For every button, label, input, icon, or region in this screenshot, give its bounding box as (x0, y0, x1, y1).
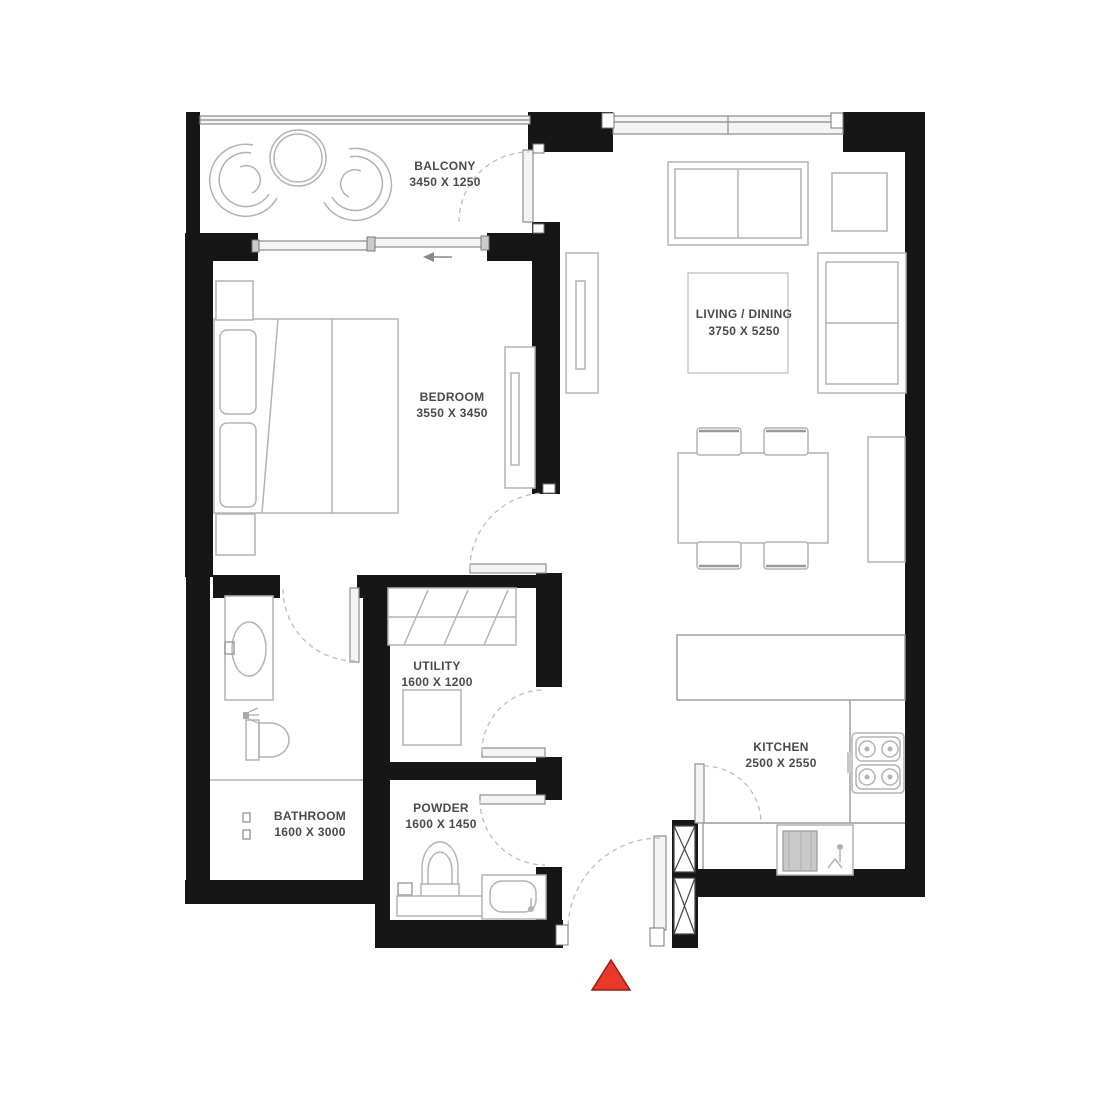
stove-icon (847, 733, 904, 793)
sofa (818, 253, 906, 393)
rug (688, 273, 788, 373)
balcony-chair-right (324, 148, 391, 220)
entry-door (556, 836, 666, 946)
wardrobe (505, 347, 535, 488)
dining-chair (764, 542, 808, 569)
bathroom-label: BATHROOM (274, 809, 346, 823)
nightstand-bottom (216, 514, 255, 555)
bathroom-toilet (246, 720, 289, 760)
bedroom-dims: 3550 X 3450 (416, 406, 487, 420)
living-window (602, 113, 843, 134)
dining-set (678, 428, 828, 569)
bathroom-door (283, 588, 359, 662)
powder-toilet (398, 842, 459, 898)
powder-counter (397, 896, 483, 916)
balcony-chair-left (210, 144, 277, 216)
entry-marker-icon (592, 960, 630, 990)
floor-plan-page: BALCONY 3450 X 1250 BEDROOM 3550 X 3450 … (0, 0, 1100, 1100)
slide-direction-arrow-icon (423, 252, 452, 262)
floor-plan-canvas: BALCONY 3450 X 1250 BEDROOM 3550 X 3450 … (0, 0, 1100, 1100)
dining-chair (697, 428, 741, 455)
dining-chair (764, 428, 808, 455)
balcony-dims: 3450 X 1250 (409, 175, 480, 189)
utility-label: UTILITY (413, 659, 460, 673)
kitchen-sink (777, 825, 853, 875)
tv-console (668, 162, 808, 245)
utility-door (482, 690, 545, 757)
console-table (868, 437, 905, 562)
utility-dims: 1600 X 1200 (401, 675, 472, 689)
bedroom-label: BEDROOM (420, 390, 485, 404)
bathroom-vanity (225, 596, 273, 700)
dining-chair (697, 542, 741, 569)
balcony-railing (200, 116, 530, 124)
kitchen-door (695, 764, 761, 823)
living-dining-label: LIVING / DINING (696, 307, 793, 321)
powder-sink (482, 875, 546, 919)
nightstand-top (216, 281, 253, 320)
kitchen-dims: 2500 X 2550 (745, 756, 816, 770)
powder-door (480, 795, 545, 865)
bathroom-dims: 1600 X 3000 (274, 825, 345, 839)
bed (214, 319, 398, 513)
balcony-table (270, 130, 326, 186)
washing-machine (403, 690, 461, 745)
wall-tv-unit (566, 253, 598, 393)
side-table (832, 173, 887, 231)
powder-label: POWDER (413, 801, 469, 815)
bedroom-door (470, 484, 555, 573)
service-shaft (674, 826, 695, 934)
powder-dims: 1600 X 1450 (405, 817, 476, 831)
shower-mixer-icon (243, 813, 250, 839)
bedroom-sliding-door (252, 236, 489, 262)
kitchen-label: KITCHEN (753, 740, 808, 754)
living-dining-dims: 3750 X 5250 (708, 324, 779, 338)
balcony-label: BALCONY (414, 159, 475, 173)
utility-closet (388, 588, 516, 645)
